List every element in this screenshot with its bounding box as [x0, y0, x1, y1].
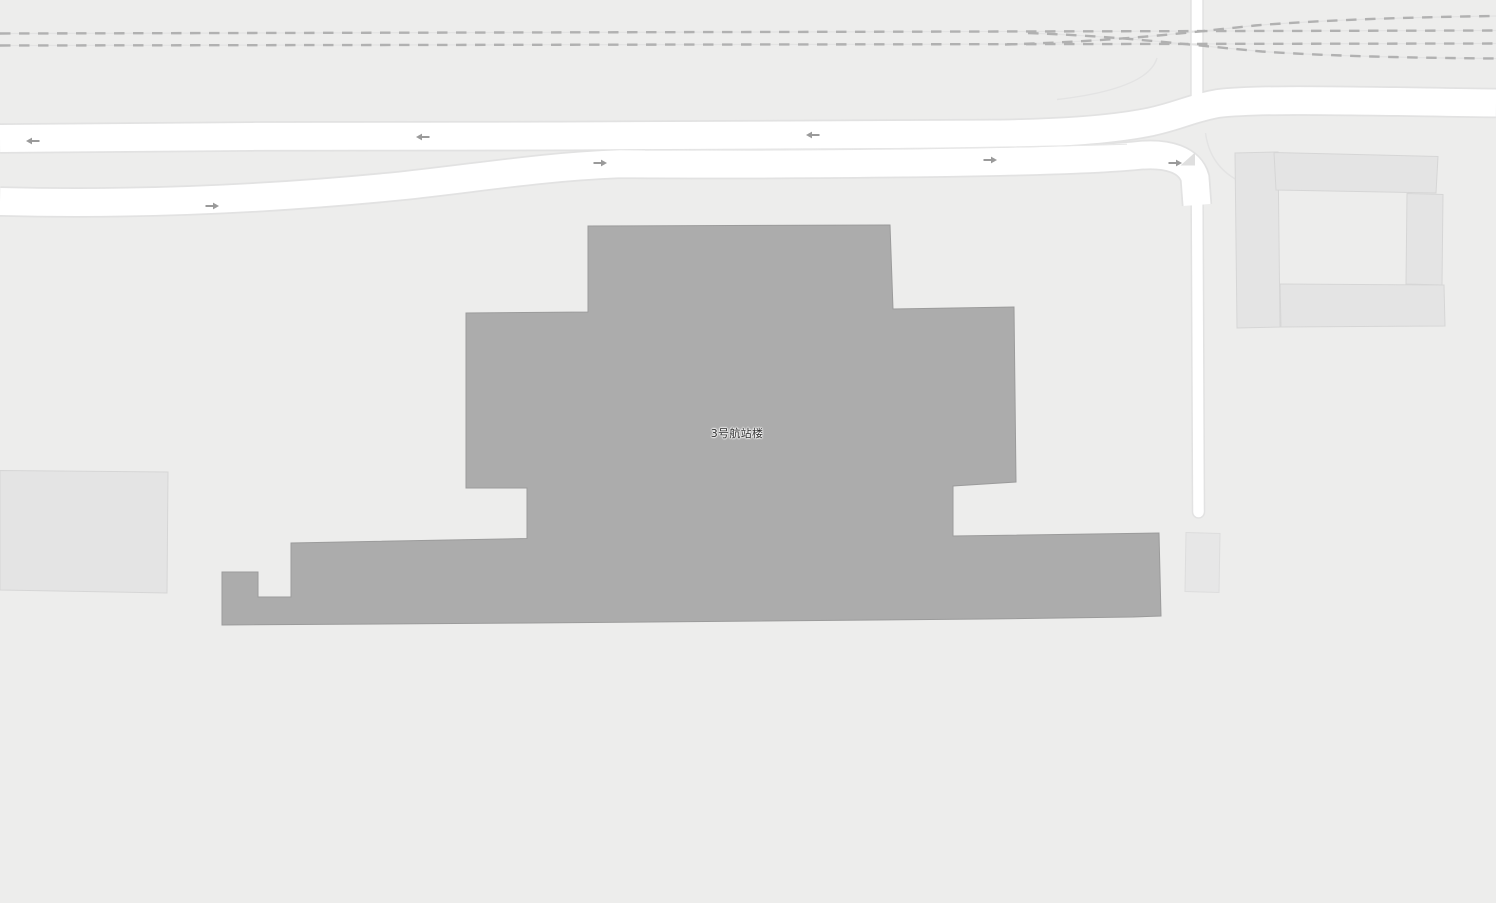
road-westbound — [0, 101, 1496, 139]
road-vertical-south — [1197, 168, 1199, 512]
apron-boundary-line — [1057, 58, 1157, 100]
railway-underline — [1028, 33, 1496, 59]
courtyard-building — [1235, 152, 1445, 328]
courtyard-building-west-wing — [1235, 152, 1280, 328]
courtyard-building-north-wing — [1274, 153, 1438, 194]
small-building-right-of-terminal — [1185, 533, 1220, 593]
railway-lines — [0, 16, 1496, 59]
map-graphics — [0, 0, 1496, 903]
courtyard-building-south-wing — [1280, 284, 1445, 327]
terminal-3-building[interactable] — [222, 225, 1161, 625]
terminal-3-label: 3号航站楼 — [711, 425, 764, 441]
map-canvas[interactable]: 3号航站楼 — [0, 0, 1496, 903]
courtyard-building-east-wing — [1406, 194, 1443, 286]
warehouse-building-left — [0, 471, 168, 594]
